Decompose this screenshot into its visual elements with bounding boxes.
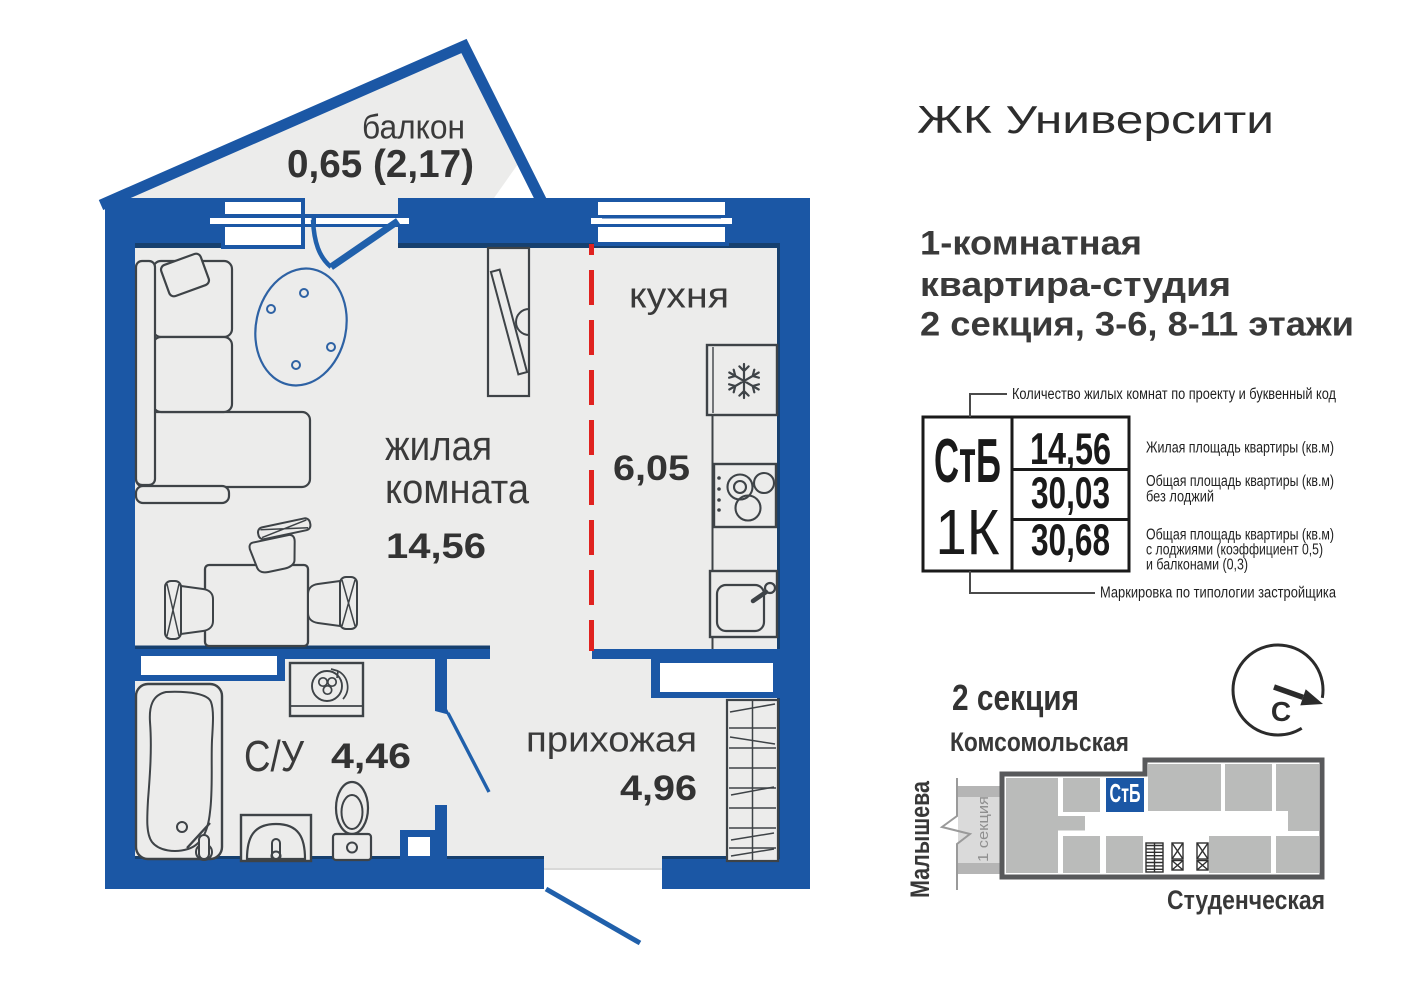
svg-text:14,56: 14,56 [1030, 425, 1111, 474]
svg-text:2 секция: 2 секция [952, 677, 1079, 718]
svg-text:комната: комната [385, 465, 530, 512]
svg-text:Комсомольская: Комсомольская [950, 727, 1129, 757]
svg-text:Количество жилых комнат по про: Количество жилых комнат по проекту и бук… [1012, 386, 1336, 403]
svg-text:балкон: балкон [362, 109, 465, 147]
svg-text:6,05: 6,05 [613, 448, 690, 488]
svg-text:Общая площадь квартиры (кв.м): Общая площадь квартиры (кв.м) [1146, 473, 1334, 490]
svg-text:Жилая площадь квартиры (кв.м): Жилая площадь квартиры (кв.м) [1146, 440, 1334, 457]
svg-text:Студенческая: Студенческая [1167, 885, 1325, 915]
svg-text:без лоджий: без лоджий [1146, 489, 1214, 506]
svg-text:С/У: С/У [244, 732, 305, 781]
svg-text:прихожая: прихожая [526, 719, 697, 760]
svg-text:30,68: 30,68 [1031, 516, 1110, 565]
svg-text:30,03: 30,03 [1031, 469, 1110, 518]
svg-text:1-комнатная: 1-комнатная [920, 225, 1142, 263]
svg-text:Малышева: Малышева [905, 781, 935, 898]
svg-text:СтБ: СтБ [934, 427, 1001, 496]
svg-text:4,46: 4,46 [331, 736, 411, 776]
svg-text:С: С [1271, 696, 1291, 727]
svg-text:14,56: 14,56 [386, 526, 486, 566]
svg-text:1 секция: 1 секция [975, 796, 992, 862]
svg-text:0,65 (2,17): 0,65 (2,17) [287, 143, 474, 186]
svg-text:4,96: 4,96 [620, 768, 697, 808]
svg-text:квартира-студия: квартира-студия [920, 266, 1231, 304]
svg-text:жилая: жилая [385, 422, 492, 469]
svg-text:и балконами (0,3): и балконами (0,3) [1146, 557, 1248, 574]
svg-text:кухня: кухня [629, 275, 729, 316]
svg-text:СтБ: СтБ [1110, 778, 1141, 808]
svg-text:Маркировка по типологии застро: Маркировка по типологии застройщика [1100, 585, 1336, 602]
svg-text:1К: 1К [936, 496, 1000, 568]
svg-text:ЖК Университи: ЖК Университи [917, 99, 1274, 142]
svg-text:2 секция, 3-6, 8-11 этажи: 2 секция, 3-6, 8-11 этажи [920, 306, 1354, 344]
